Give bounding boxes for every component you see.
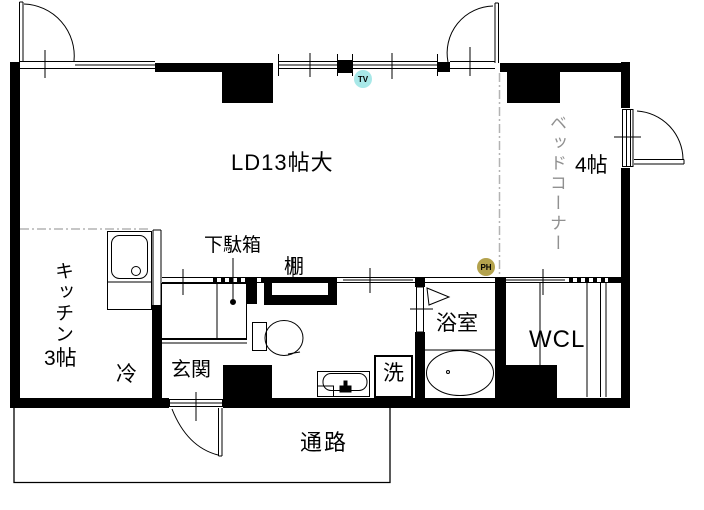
label-washing-machine: 洗 <box>383 363 404 384</box>
room-size-bed-corner: 4帖 <box>575 155 608 176</box>
toilet <box>253 321 304 356</box>
kitchen-sink <box>108 230 162 310</box>
room-label-bathroom: 浴室 <box>436 313 478 334</box>
room-label-kitchen: キッチン <box>53 261 72 345</box>
room-label-walk-in-closet: WCL <box>529 328 585 352</box>
bedcorner-door-right <box>614 108 684 168</box>
ph-outlet-badge: PH <box>477 258 495 276</box>
room-size-kitchen: 3帖 <box>44 348 77 369</box>
shelf-alcove <box>272 283 328 295</box>
floorplan-drawing <box>0 0 704 510</box>
label-refrigerator: 冷 <box>116 364 137 385</box>
floorplan-page: LD13帖大 ベッドコーナー 4帖 キッチン 3帖 冷 玄関 下駄箱 棚 浴室 … <box>0 0 704 510</box>
walls <box>10 60 630 408</box>
label-shelf: 棚 <box>284 257 304 277</box>
shower-valve-icon <box>427 288 449 305</box>
room-label-entrance: 玄関 <box>171 360 211 380</box>
room-label-bed-corner: ベッドコーナー <box>548 114 565 254</box>
bathroom-door <box>410 287 433 332</box>
bathtub <box>425 288 495 396</box>
room-label-living-dining: LD13帖大 <box>231 152 334 174</box>
washbasin <box>318 372 370 397</box>
room-label-passage: 通路 <box>300 432 348 454</box>
tv-outlet-badge: TV <box>354 70 372 88</box>
entrance-door <box>169 392 223 456</box>
balcony-door-mid <box>447 3 498 63</box>
balcony-door-left <box>20 2 75 62</box>
label-shoe-cabinet: 下駄箱 <box>204 236 261 255</box>
